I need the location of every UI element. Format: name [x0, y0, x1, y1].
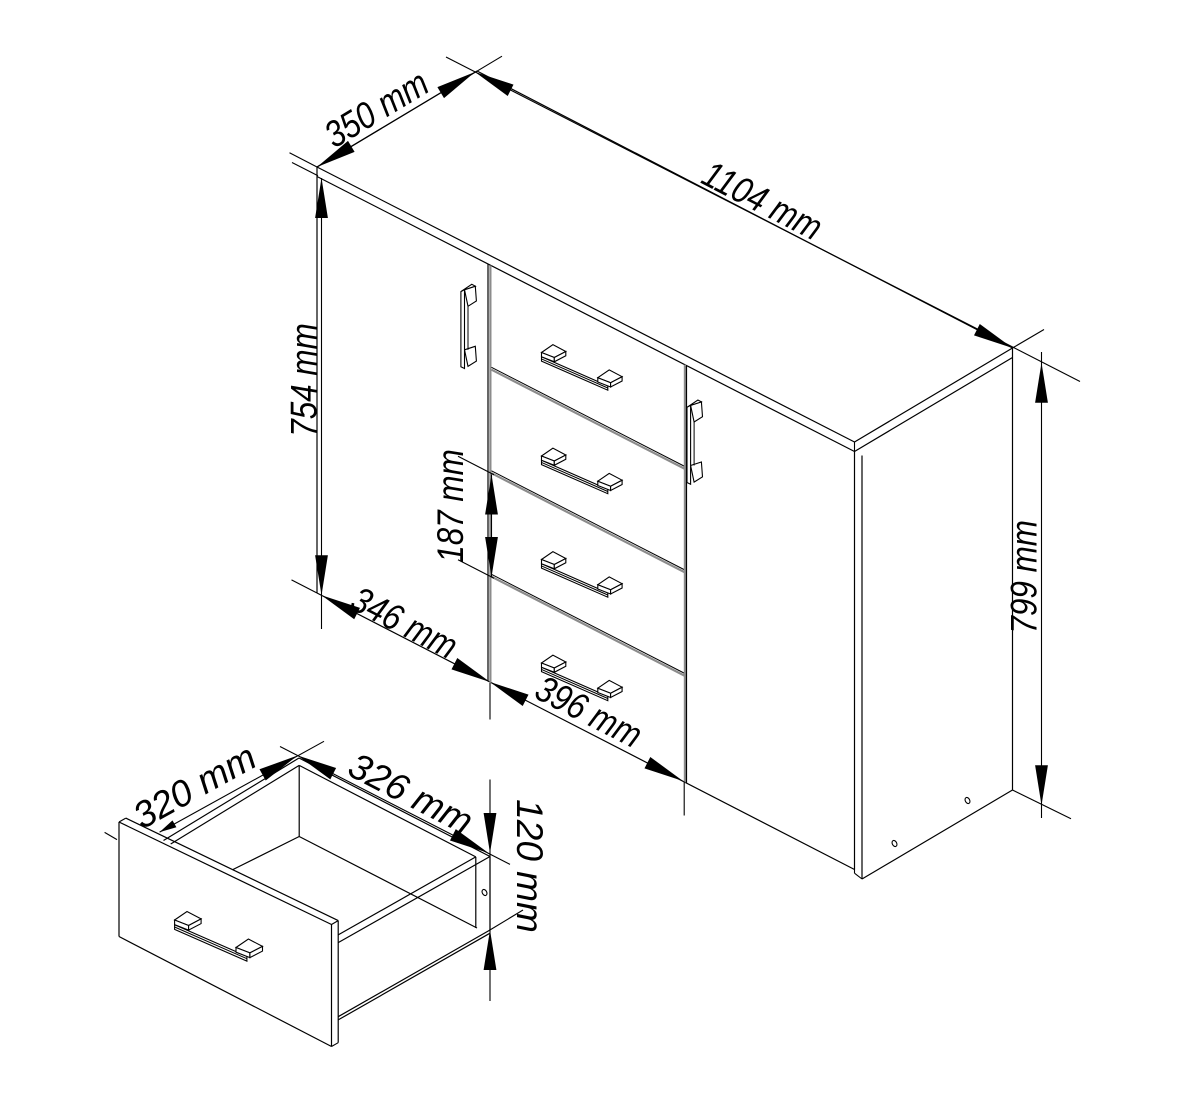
svg-text:754 mm: 754 mm: [284, 323, 325, 437]
svg-text:799 mm: 799 mm: [1004, 520, 1045, 634]
svg-text:187 mm: 187 mm: [431, 449, 472, 563]
svg-text:120 mm: 120 mm: [509, 799, 550, 933]
